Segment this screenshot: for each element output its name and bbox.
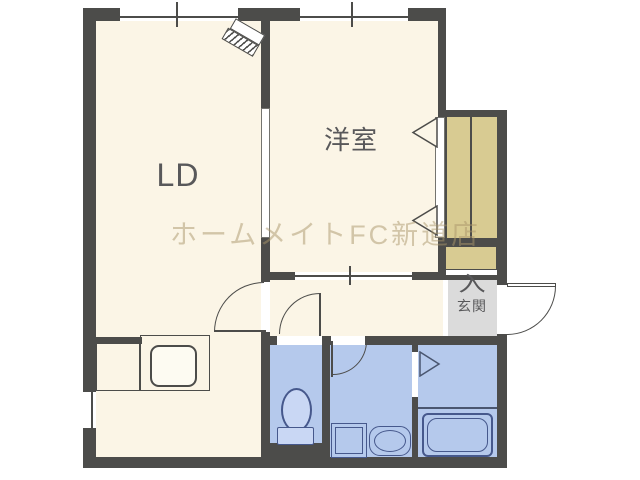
bathroom-folding-door-icon: [419, 351, 441, 377]
sliding-door-line: [295, 275, 412, 277]
washing-machine-pan-inner: [335, 427, 363, 454]
watermark-text: ホームメイトFC新道店: [170, 213, 490, 252]
tick-window-ld: [176, 2, 178, 27]
toilet-bowl-icon: [281, 388, 312, 432]
wall-westernroom-bottom-left: [261, 272, 295, 280]
appliance-icon: [221, 17, 269, 61]
washbasin-icon: [369, 426, 411, 456]
label-living-dining: LD: [138, 159, 218, 191]
window-glass-line: [91, 392, 93, 428]
kitchen-sink: [150, 345, 197, 387]
window-left-wall: [83, 392, 96, 428]
ld-door-leaf: [214, 330, 266, 332]
washing-machine-pan-icon: [331, 423, 367, 458]
wall-center-lower: [261, 332, 270, 468]
entry-door-arc: [507, 286, 556, 335]
bathroom-area-line: [418, 407, 497, 409]
wall-hall-bottom-b: [322, 336, 331, 345]
opening-westernroom-hall: [295, 272, 412, 280]
wall-westernroom-right: [438, 8, 446, 117]
appliance-body: [223, 18, 265, 58]
label-entrance: 玄関: [444, 299, 500, 313]
label-western-room: 洋室: [306, 127, 396, 153]
bathtub-icon: [422, 413, 493, 457]
closet-folding-door-icon: [411, 117, 438, 148]
toilet-door-leaf: [319, 293, 321, 336]
wall-kitchen-stub: [96, 337, 142, 344]
washbasin-bowl: [374, 430, 406, 452]
entry-door-leaf: [507, 283, 556, 287]
toilet-tank-icon: [277, 427, 314, 445]
kitchen-counter-left: [96, 343, 140, 391]
bathroom-door-strip: [412, 352, 418, 397]
wall-hall-bottom-a: [261, 336, 277, 345]
washroom-door-leaf: [331, 341, 333, 377]
entrance-enter-mark: 入: [453, 274, 492, 295]
bathtub-inner: [427, 418, 488, 452]
tick-window-westernroom: [351, 2, 353, 27]
floor-plan: ホームメイトFC新道店 LD 洋室 入 玄関: [0, 0, 640, 480]
wall-closet-top: [438, 110, 507, 117]
tick-opening-hall: [349, 266, 351, 285]
wall-under-toilet: [270, 443, 322, 468]
wall-hall-bottom-c: [365, 336, 507, 345]
wall-toilet-right: [322, 345, 330, 468]
window-westernroom-top: [300, 8, 408, 21]
opening-toilet-door: [277, 336, 322, 345]
window-glass-line: [300, 16, 408, 18]
